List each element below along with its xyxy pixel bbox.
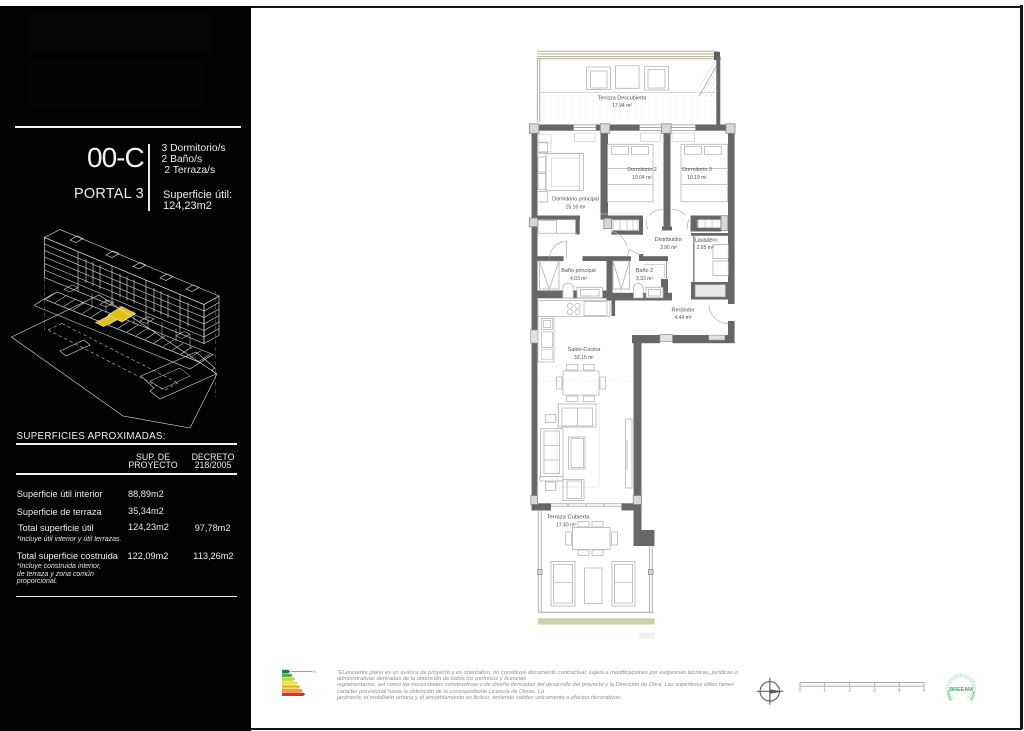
svg-text:4.03 m²: 4.03 m² bbox=[570, 276, 587, 282]
svg-text:Baño principal: Baño principal bbox=[561, 268, 595, 274]
svg-text:Terraza Descubierta: Terraza Descubierta bbox=[598, 96, 648, 102]
svg-text:Terraza Cubierta: Terraza Cubierta bbox=[547, 515, 591, 521]
svg-text:Lavadero: Lavadero bbox=[695, 238, 718, 244]
svg-text:Recibidor: Recibidor bbox=[672, 308, 695, 314]
svg-text:10.19 m²: 10.19 m² bbox=[687, 175, 707, 181]
svg-text:Distribuidor: Distribuidor bbox=[655, 237, 683, 243]
svg-text:17.40 m²: 17.40 m² bbox=[556, 523, 576, 529]
svg-text:3.90 m²: 3.90 m² bbox=[660, 245, 677, 251]
svg-text:1: 1 bbox=[823, 688, 826, 694]
svg-text:BREEAM: BREEAM bbox=[949, 687, 973, 693]
svg-text:4.44 m²: 4.44 m² bbox=[674, 315, 691, 321]
svg-text:4: 4 bbox=[898, 688, 901, 694]
svg-text:5: 5 bbox=[923, 688, 926, 694]
svg-text:Dormitorio principal: Dormitorio principal bbox=[552, 197, 599, 203]
svg-text:2: 2 bbox=[848, 688, 851, 694]
svg-text:17.94 m²: 17.94 m² bbox=[612, 103, 632, 109]
svg-text:Salón-Cocina: Salón-Cocina bbox=[568, 347, 602, 353]
svg-text:A: A bbox=[313, 669, 316, 674]
svg-text:33.15 m²: 33.15 m² bbox=[574, 355, 594, 361]
svg-text:3: 3 bbox=[873, 688, 876, 694]
svg-text:15.16 m²: 15.16 m² bbox=[566, 205, 586, 211]
svg-text:2.65 m²: 2.65 m² bbox=[696, 245, 713, 251]
svg-text:10.04 m²: 10.04 m² bbox=[632, 175, 652, 181]
svg-text:Dormitorio 3: Dormitorio 3 bbox=[682, 167, 712, 173]
svg-text:3.33 m²: 3.33 m² bbox=[636, 276, 653, 282]
svg-text:Baño 2: Baño 2 bbox=[636, 268, 653, 274]
svg-text:Dormitorio 2: Dormitorio 2 bbox=[627, 167, 657, 173]
svg-text:0: 0 bbox=[799, 688, 802, 694]
